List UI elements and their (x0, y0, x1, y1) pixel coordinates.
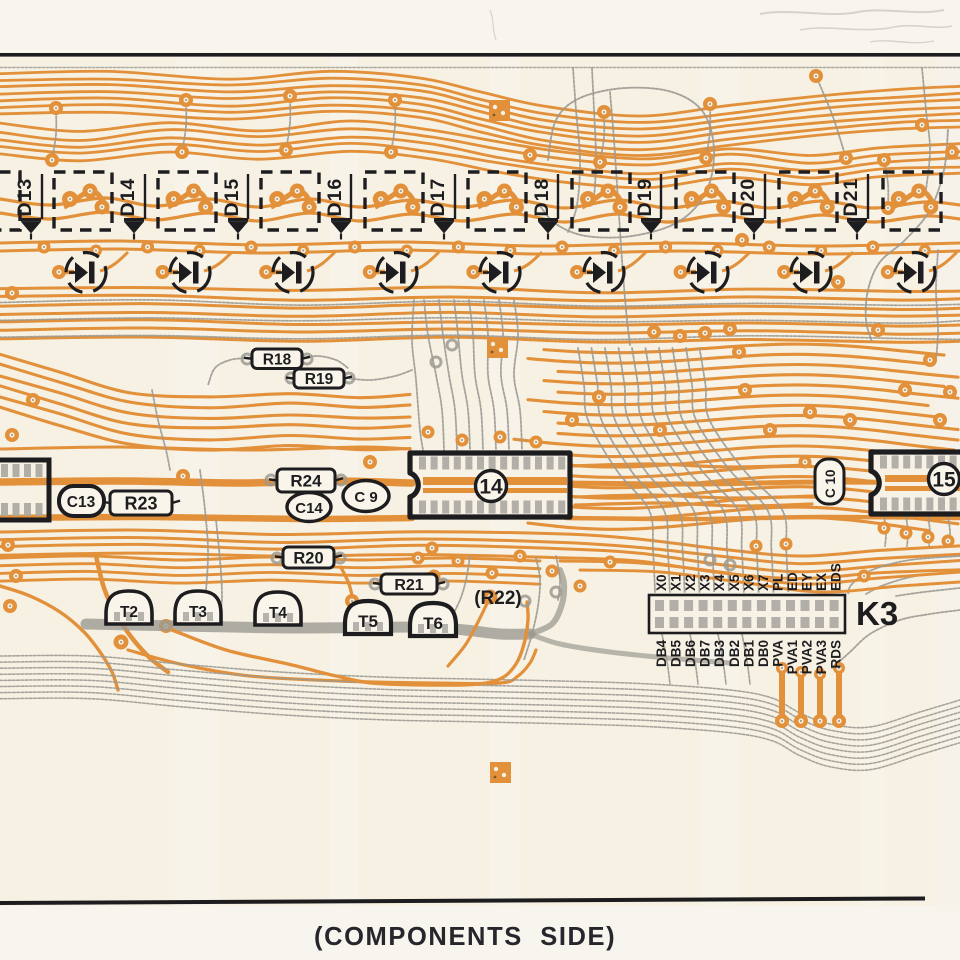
svg-text:R19: R19 (305, 371, 334, 388)
svg-text:15: 15 (932, 469, 956, 492)
svg-text:DB0: DB0 (756, 640, 771, 667)
svg-text:X4: X4 (712, 574, 727, 591)
svg-text:R21: R21 (394, 577, 423, 594)
svg-text:C 9: C 9 (354, 489, 377, 506)
svg-text:D15: D15 (221, 178, 243, 217)
svg-text:R20: R20 (293, 549, 323, 567)
svg-text:(COMPONENTS SIDE): (COMPONENTS SIDE) (314, 923, 616, 951)
svg-text:(R22): (R22) (474, 588, 522, 609)
svg-text:D17: D17 (427, 178, 449, 217)
svg-text:PVA2: PVA2 (800, 640, 815, 674)
svg-text:T4: T4 (269, 605, 287, 622)
svg-text:RDS: RDS (829, 640, 844, 669)
svg-text:D20: D20 (737, 178, 759, 217)
svg-text:PL: PL (770, 574, 785, 591)
svg-text:X2: X2 (683, 574, 698, 591)
svg-text:D19: D19 (634, 178, 656, 217)
svg-text:D21: D21 (840, 178, 862, 217)
svg-text:EDS: EDS (829, 563, 844, 591)
svg-text:EX: EX (814, 573, 829, 591)
svg-text:14: 14 (479, 476, 503, 499)
svg-text:K3: K3 (856, 595, 898, 632)
svg-text:X1: X1 (669, 574, 684, 591)
svg-text:C14: C14 (295, 500, 323, 517)
svg-text:T5: T5 (358, 612, 378, 631)
svg-text:PVA1: PVA1 (785, 640, 800, 675)
svg-text:C 10: C 10 (823, 469, 838, 498)
svg-text:X3: X3 (698, 574, 713, 591)
svg-text:D16: D16 (324, 178, 346, 217)
svg-text:PVA3: PVA3 (814, 640, 829, 675)
svg-text:D18: D18 (531, 178, 553, 217)
svg-text:R18: R18 (263, 351, 292, 368)
svg-text:X5: X5 (727, 574, 742, 591)
svg-text:D14: D14 (117, 178, 139, 217)
svg-text:PVA: PVA (770, 640, 785, 667)
svg-text:DB5: DB5 (669, 640, 684, 667)
svg-text:DB2: DB2 (727, 640, 742, 667)
svg-text:DB6: DB6 (683, 640, 698, 667)
svg-text:T3: T3 (189, 604, 207, 621)
svg-text:DB1: DB1 (741, 640, 756, 667)
svg-text:C13: C13 (67, 494, 96, 511)
svg-text:T2: T2 (120, 604, 138, 621)
svg-text:DB3: DB3 (712, 640, 727, 667)
svg-text:R24: R24 (290, 472, 322, 491)
svg-text:DB7: DB7 (698, 640, 713, 667)
svg-text:D13: D13 (14, 178, 36, 217)
svg-text:X7: X7 (756, 574, 771, 591)
svg-text:X6: X6 (741, 574, 756, 591)
svg-text:DB4: DB4 (654, 640, 669, 667)
svg-text:X0: X0 (654, 574, 669, 591)
svg-text:ED: ED (785, 572, 800, 591)
svg-text:T6: T6 (423, 614, 443, 633)
svg-text:EY: EY (800, 573, 815, 591)
svg-text:R23: R23 (124, 493, 157, 513)
